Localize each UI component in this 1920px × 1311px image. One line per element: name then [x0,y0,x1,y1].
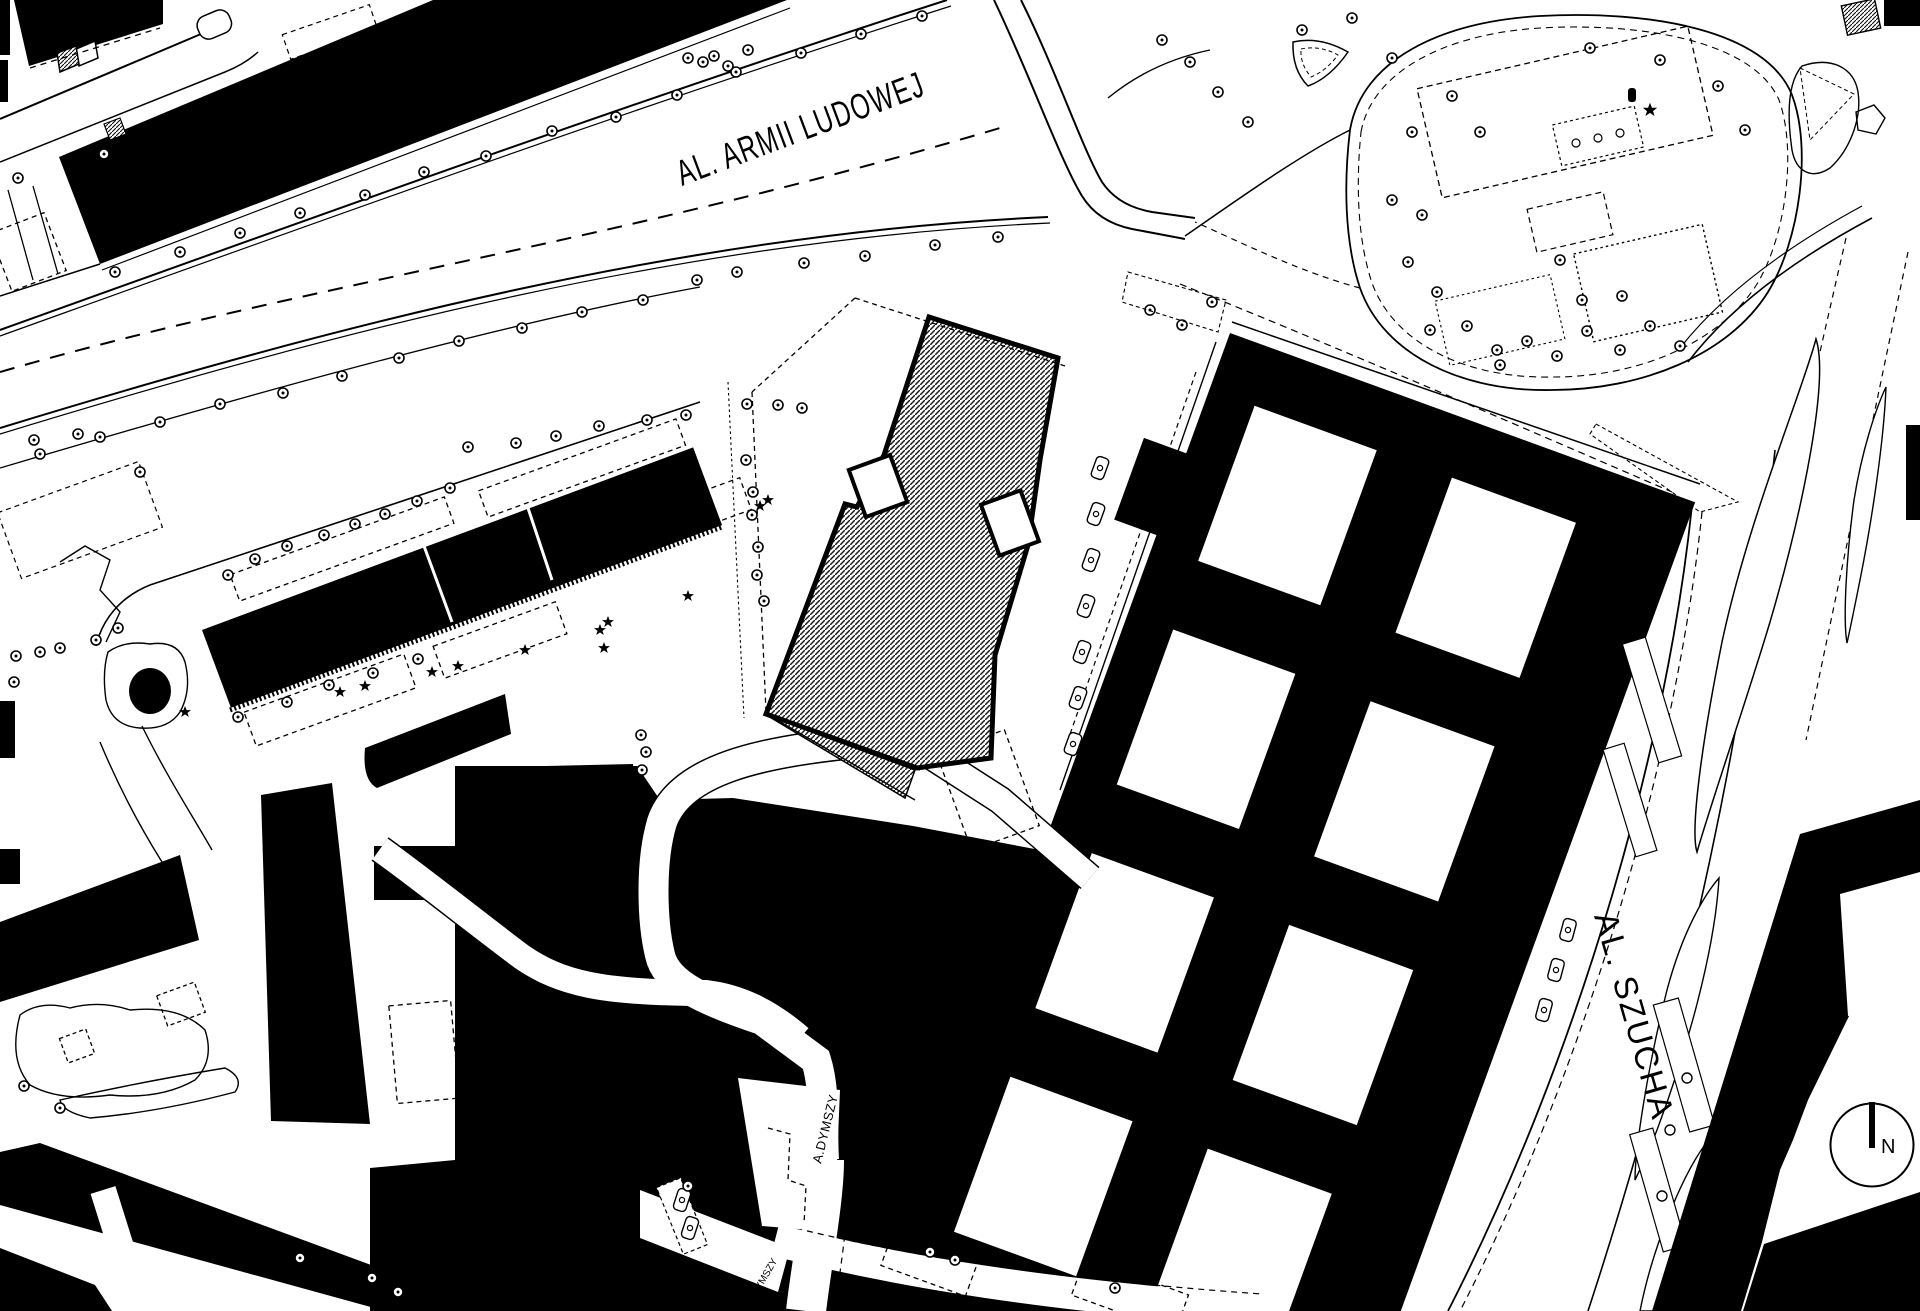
svg-text:N: N [1881,1136,1895,1158]
